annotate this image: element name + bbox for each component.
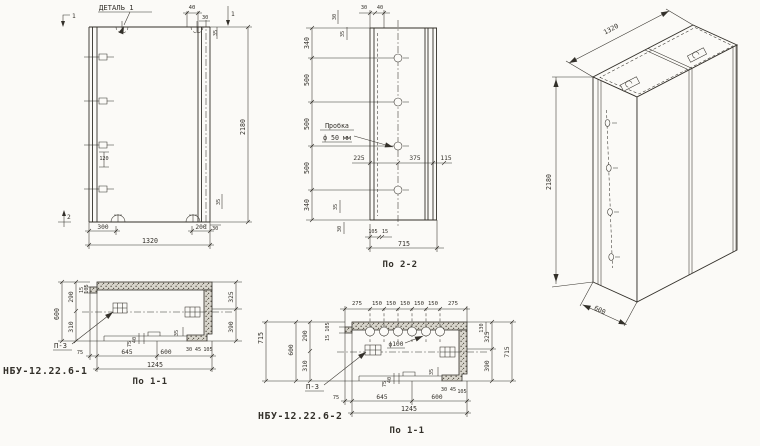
dim-645: 645 [121,349,132,356]
detail-callout-label: ДЕТАЛЬ 1 [99,3,134,12]
dim-s40: 40 [387,377,393,383]
dim-645: 645 [376,394,387,401]
dim-715-right: 715 [504,346,511,357]
dim-35-bottom: 35 [216,199,222,205]
section-mark-1-right-label: 1 [231,11,235,18]
embedded-plate [185,307,200,317]
iso-dim-2180: 2180 [545,174,553,190]
dim-325: 325 [228,291,235,302]
dim-500-2: 500 [303,118,311,130]
hole-label: ф100 [389,340,404,348]
side-hole [606,165,611,172]
dim-small-30: 30 [332,14,338,20]
dim-275-r: 275 [448,301,458,307]
dim-150-5: 150 [428,301,438,307]
dim-s35: 35 [429,369,435,375]
dim-390: 390 [228,321,235,332]
dim-105-small: 105 [84,284,90,293]
dim-hook-spacing: 120 [99,156,108,162]
dim-340-bottom: 340 [303,199,311,211]
dim-75: 75 [333,395,339,401]
dim-390: 390 [484,360,491,371]
dim-s35: 35 [174,330,180,336]
dim-s40: 40 [132,337,138,343]
dim-1245: 1245 [147,361,163,369]
dim-290: 290 [302,330,309,341]
plug-hole [394,142,402,150]
dim-200: 200 [195,224,206,231]
embedded-plate [440,347,455,357]
hole-f100 [408,327,417,336]
dim-225: 225 [353,155,364,162]
plate-callout-label: П-3 [54,341,67,350]
hole-f100 [380,327,389,336]
dim-2180: 2180 [239,119,247,135]
dim-115: 115 [440,155,451,162]
hole-f100 [422,327,431,336]
dim-340-top: 340 [303,37,311,49]
dim-bsmall-35: 35 [333,204,339,210]
dim-130: 130 [479,323,485,332]
s1b-title: НБУ-12.22.6-2 [258,411,342,422]
section-mark-1-left-label: 1 [72,13,76,20]
dim-s105: 105 [203,347,212,353]
dim-715-s22: 715 [398,240,410,248]
dim-bsmall-30: 30 [337,226,343,232]
dim-35-top: 35 [213,30,219,36]
dim-75: 75 [77,350,83,356]
dim-150-4: 150 [414,301,424,307]
technical-drawing: 120 ДЕТАЛЬ 1 1 1 2 40 30 35 2180 35 30 [0,0,760,446]
dim-s105: 105 [457,389,466,395]
hole-f100 [394,327,403,336]
drawing-sheet: 120 ДЕТАЛЬ 1 1 1 2 40 30 35 2180 35 30 [0,0,760,446]
dim-310: 310 [68,321,75,332]
section-mark-2-label: 2 [67,214,71,221]
dim-500-3: 500 [303,162,311,174]
dim-290: 290 [68,291,75,302]
dim-715-left: 715 [257,332,265,344]
plate-callout-label: П-3 [306,382,319,391]
s1a-caption: По 1-1 [133,377,168,387]
plug-hole [394,186,402,194]
dim-30-top: 30 [202,15,208,21]
dim-small-35: 35 [340,31,346,37]
dim-275-l: 275 [352,301,362,307]
dim-325: 325 [484,331,491,342]
hole-f100 [366,327,375,336]
dim-40-s22: 40 [377,5,383,11]
plug-label-line2: ф 50 мм [323,134,351,142]
plug-hole [394,54,402,62]
dim-30-s22: 30 [361,5,367,11]
s1a-top-band [97,282,212,290]
s1b-left-tab [345,327,352,333]
embedded-plate [365,345,381,355]
dim-15-small: 15 [325,335,331,341]
side-hole [605,120,610,127]
dim-s30: 30 [441,387,447,393]
dim-310: 310 [302,360,309,371]
side-hole [608,209,613,216]
dim-s30: 30 [186,347,192,353]
s1a-title: НБУ-12.22.6-1 [3,366,87,377]
side-hole [609,254,614,261]
s1a-left-tab [90,287,97,293]
s1b-caption: По 1-1 [390,426,425,436]
hole-f100 [436,327,445,336]
dim-105-s22: 105 [368,229,377,235]
dim-150-1: 150 [372,301,382,307]
iso-left-face [593,77,637,302]
dim-375: 375 [409,155,420,162]
dim-s45: 45 [450,387,456,393]
dim-600-left: 600 [288,344,295,355]
dim-150-3: 150 [400,301,410,307]
dim-600-bottom: 600 [431,394,442,401]
dim-1320: 1320 [142,237,158,245]
plug-hole [394,98,402,106]
dim-s45: 45 [195,347,201,353]
dim-40: 40 [189,5,196,11]
dim-150-2: 150 [386,301,396,307]
dim-600-bottom: 600 [160,349,171,356]
dim-15-s22: 15 [382,229,388,235]
plug-label-line1: Пробка [325,122,349,130]
embedded-plate [113,303,127,313]
dim-105-small: 105 [325,322,331,331]
dim-300: 300 [97,224,108,231]
s22-caption: По 2-2 [383,260,418,270]
dim-1245: 1245 [401,405,417,413]
dim-500-1: 500 [303,74,311,86]
dim-600-left: 600 [53,308,61,320]
